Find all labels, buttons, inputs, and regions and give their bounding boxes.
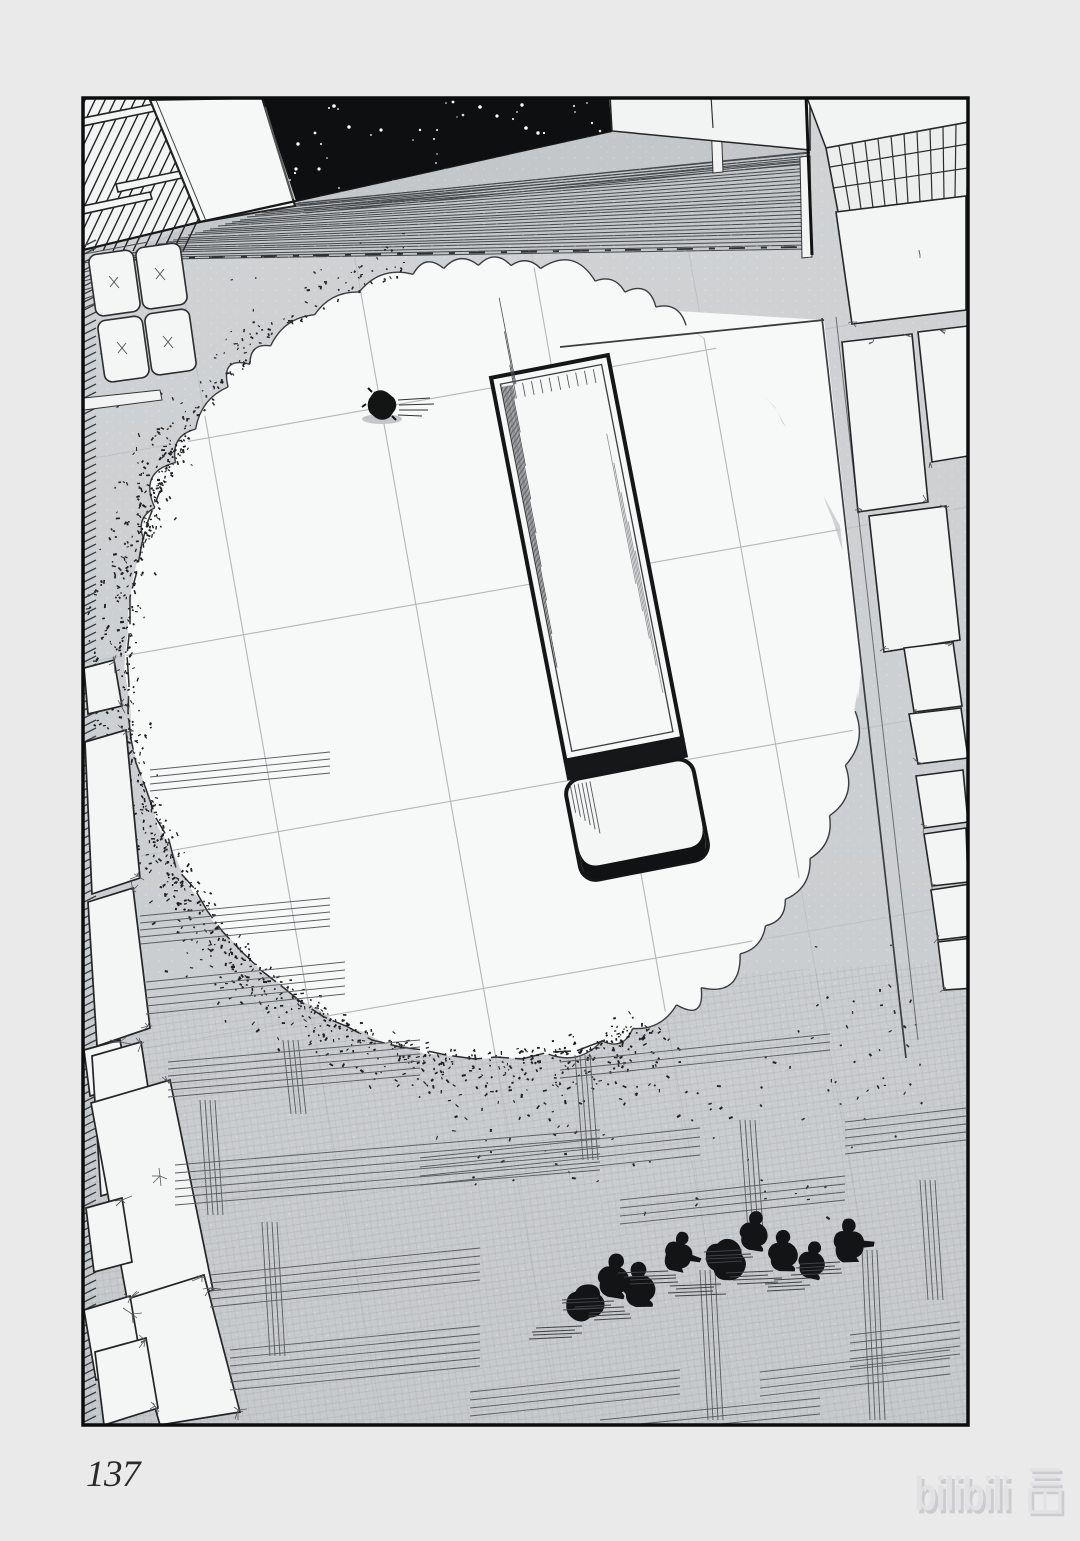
svg-text:137: 137 [86,1454,142,1495]
svg-text:bilibili: bilibili [914,1468,1010,1521]
